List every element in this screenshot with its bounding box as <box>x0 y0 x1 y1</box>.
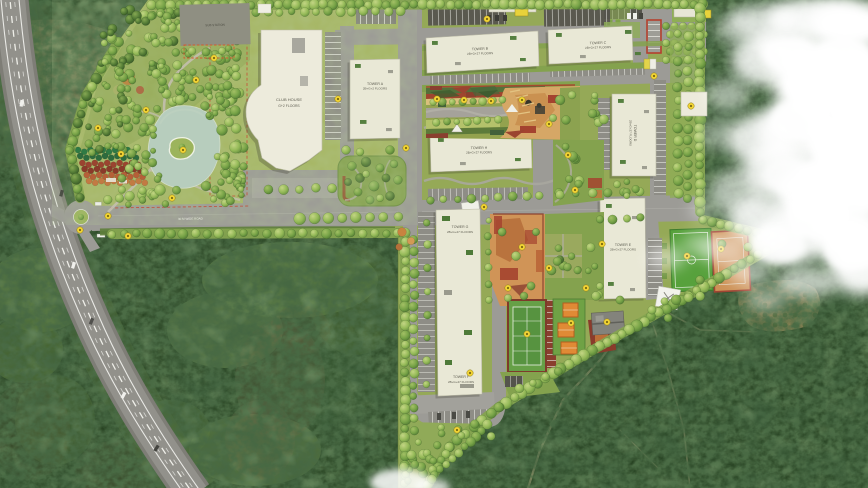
svg-text:2B+G+27 FLOORS: 2B+G+27 FLOORS <box>448 380 474 384</box>
svg-text:CLUB HOUSE: CLUB HOUSE <box>276 97 302 102</box>
svg-text:TOWER F: TOWER F <box>453 375 469 379</box>
svg-text:TOWER A: TOWER A <box>367 82 384 86</box>
svg-text:2B+G+27 FLOORS: 2B+G+27 FLOORS <box>629 120 633 146</box>
svg-text:2B+G+27 FLOORS: 2B+G+27 FLOORS <box>447 230 473 234</box>
svg-text:TOWER G: TOWER G <box>452 225 469 229</box>
svg-text:2B+G+27 FLOORS: 2B+G+27 FLOORS <box>610 248 636 252</box>
svg-text:TOWER E: TOWER E <box>615 243 632 247</box>
svg-text:G+2 FLOORS: G+2 FLOORS <box>278 104 300 108</box>
svg-text:2B+G+27 FLOORS: 2B+G+27 FLOORS <box>466 150 492 154</box>
svg-text:2B+G+2 FLOORS: 2B+G+2 FLOORS <box>363 87 387 91</box>
svg-text:30 M WIDE ROAD: 30 M WIDE ROAD <box>178 217 204 221</box>
svg-text:TOWER D: TOWER D <box>633 125 637 142</box>
svg-text:SUB STATION: SUB STATION <box>205 23 225 28</box>
